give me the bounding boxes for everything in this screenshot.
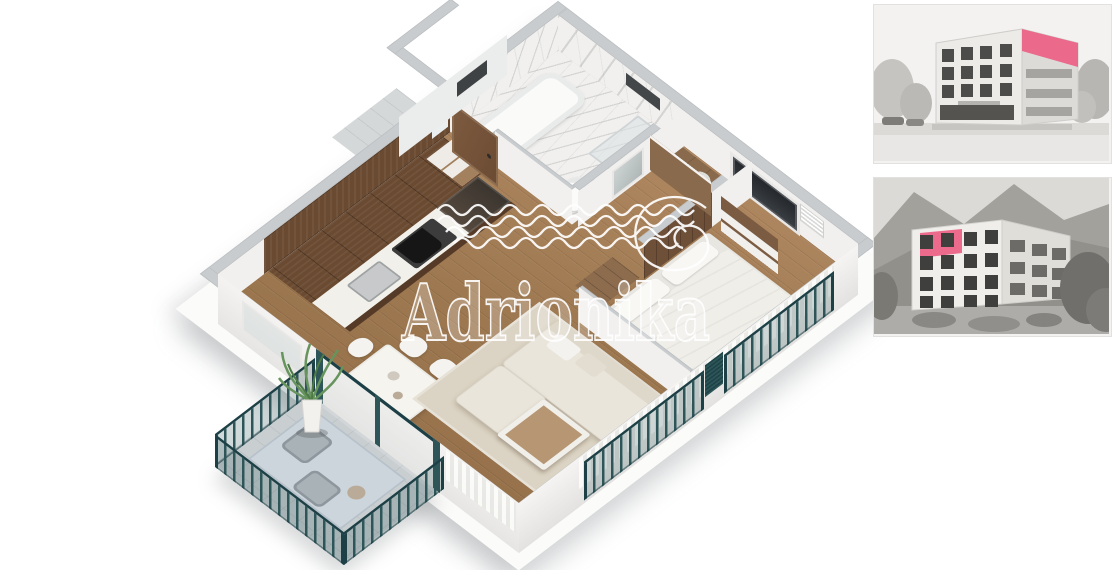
building-photo-2 (873, 177, 1112, 337)
wall-cap-stairwell (386, 0, 459, 54)
sliding-door-frame (375, 394, 380, 448)
stairwell-window (457, 60, 487, 97)
building-photo-1 (873, 4, 1112, 164)
entrance-canopy (958, 101, 1000, 105)
side-balconies (1010, 240, 1066, 299)
floorplan-listing-image: Adrionika (0, 0, 1117, 570)
car-icon (882, 117, 904, 125)
watermark-text: Adrionika (401, 268, 710, 359)
watermark-swirl-icon (635, 197, 708, 270)
storefront (940, 105, 1014, 120)
bush (912, 312, 956, 328)
bush (1026, 313, 1062, 327)
tree-icon (900, 83, 932, 123)
watermark: Adrionika (388, 168, 888, 378)
terrace-plant (276, 336, 346, 441)
watermark-waves-icon (438, 197, 708, 270)
door-handle-icon (487, 153, 491, 160)
side-balconies (1026, 69, 1072, 116)
car-icon (906, 119, 924, 126)
road (874, 135, 1109, 161)
bush (968, 316, 1020, 332)
